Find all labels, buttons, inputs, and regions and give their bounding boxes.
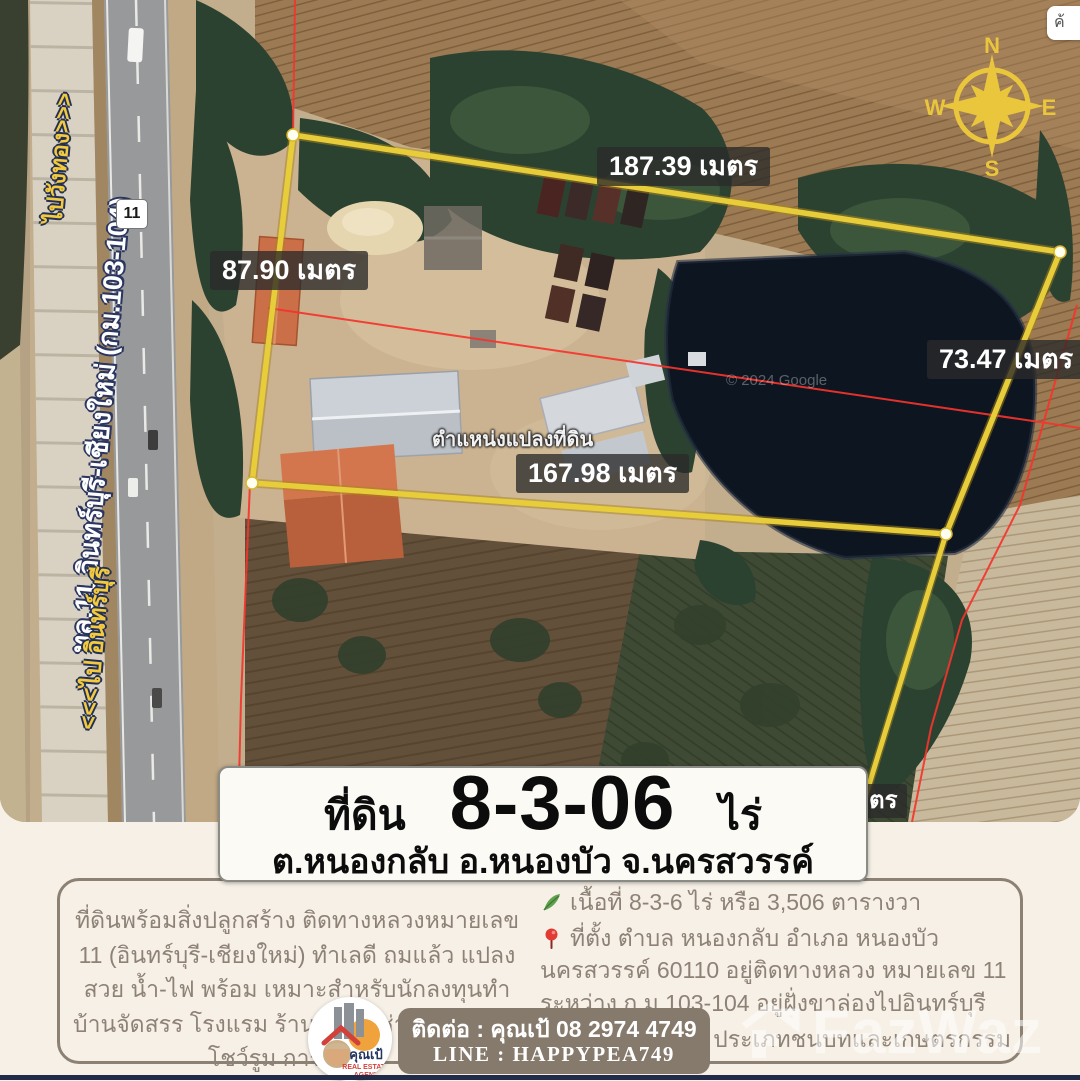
logo-name: คุณเป้: [349, 1047, 382, 1063]
measurement-bottom: 167.98 เมตร: [516, 454, 689, 493]
measurement-right: 73.47 เมตร: [927, 340, 1080, 379]
leaf-icon: [540, 890, 563, 913]
title-prefix: ที่ดิน: [324, 795, 406, 836]
contact-bar: ติดต่อ : คุณเป้ 08 2974 4749 LINE : HAPP…: [398, 1008, 710, 1074]
compass-w: W: [925, 95, 946, 120]
satellite-map: 187.39 เมตร 87.90 เมตร 73.47 เมตร 167.98…: [0, 0, 1080, 822]
location-line: ต.หนองกลับ อ.หนองบัว จ.นครสวรรค์: [272, 844, 814, 881]
contact-phone: ติดต่อ : คุณเป้ 08 2974 4749: [411, 1018, 696, 1041]
compass-n: N: [984, 33, 1000, 58]
compass-e: E: [1042, 95, 1057, 120]
detail-area: เนื้อที่ 8-3-6 ไร่ หรือ 3,506 ตารางวา: [540, 886, 1026, 919]
fazwaz-house-icon: [738, 1000, 802, 1064]
fazwaz-watermark: FazWaz: [738, 995, 1043, 1069]
measurement-left: 87.90 เมตร: [210, 251, 368, 290]
agent-logo: คุณเป้ REAL ESTATE AGENT: [308, 997, 392, 1081]
measurement-top: 187.39 เมตร: [597, 147, 770, 186]
title-unit: ไร่: [719, 795, 762, 836]
pin-icon: [540, 926, 563, 949]
map-credit: © 2024 Google: [726, 372, 827, 389]
compass-s: S: [985, 156, 1000, 181]
title-box: ที่ดิน 8-3-06 ไร่ ต.หนองกลับ อ.หนองบัว จ…: [218, 766, 868, 882]
land-listing-flyer: { "map": { "measurements": { "top": "187…: [0, 0, 1080, 1080]
parcel-caption: ตำแหน่งแปลงที่ดิน: [432, 423, 593, 455]
contact-line-id: LINE : HAPPYPEA749: [433, 1044, 675, 1065]
route-11-shield: 11: [116, 199, 148, 229]
bottom-navy-strip: [0, 1075, 1080, 1080]
land-area-rai: 8-3-06: [450, 766, 676, 842]
compass-rose: N E S W: [912, 26, 1072, 186]
